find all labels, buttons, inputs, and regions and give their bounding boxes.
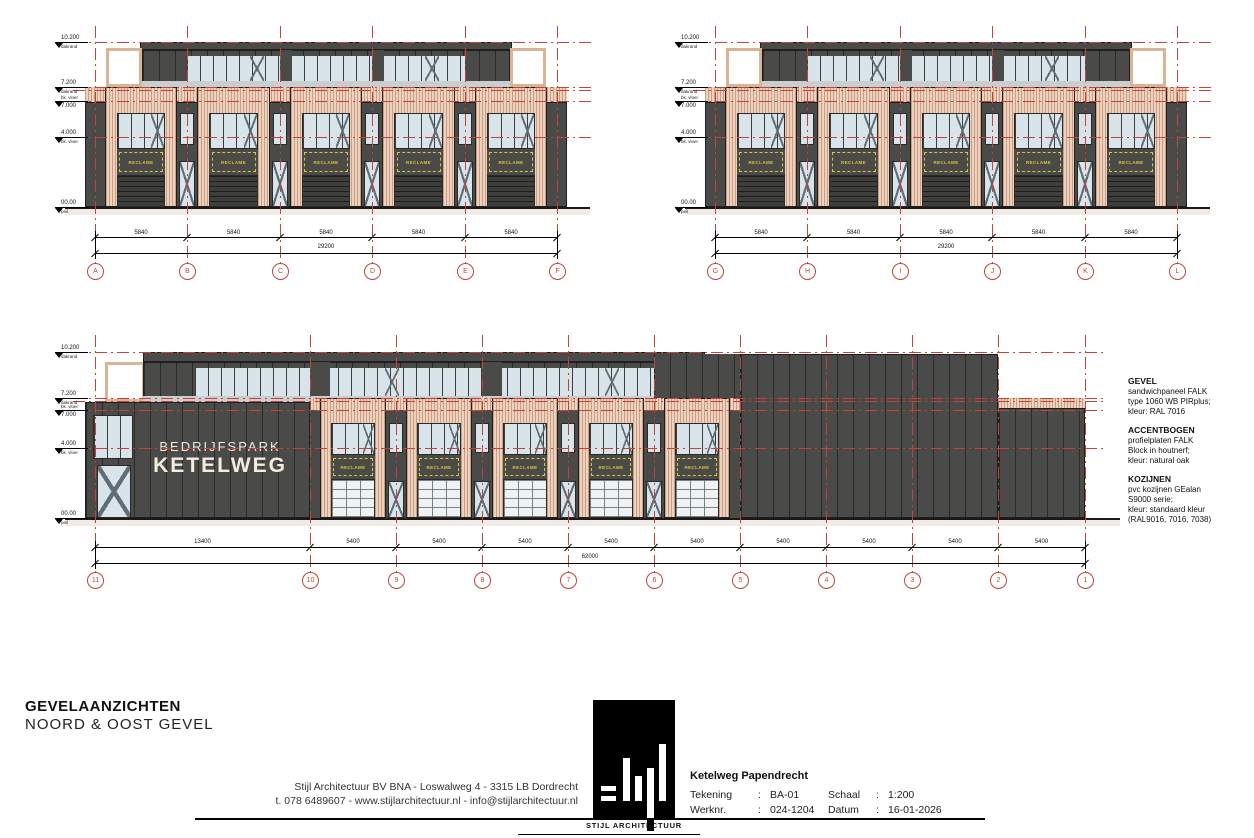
grid-reference-line [1085, 335, 1086, 572]
glass-sectional-door [589, 479, 633, 518]
window-x-pane [621, 424, 632, 454]
glass-sectional-door [417, 479, 461, 518]
dim-total-line [715, 253, 1177, 254]
grid-reference-line [95, 335, 96, 572]
reclame-box: RECLAME [212, 152, 256, 172]
level-sub: peil [681, 209, 688, 214]
spec-gap [1128, 417, 1252, 425]
window-x-pane [449, 424, 460, 454]
roof-terrace-frame [726, 48, 762, 87]
roof-terrace-frame [510, 48, 546, 87]
grid-reference-line [95, 26, 96, 266]
logo-underline [518, 834, 700, 835]
window-x-pane [429, 114, 442, 148]
grid-reference-line [654, 335, 655, 572]
reclame-box: RECLAME [739, 152, 783, 172]
left-window [93, 415, 133, 459]
ground-band [685, 207, 1210, 215]
level-sub: peil [61, 520, 68, 525]
grid-bubble: 3 [904, 572, 921, 589]
window-x-pane [1045, 56, 1059, 81]
level-reference-line [693, 137, 1213, 138]
dim-value: 5400 [930, 539, 980, 546]
level-sub: bk. vloer [681, 95, 698, 100]
grid-reference-line [396, 335, 397, 572]
schaal-label: Schaal [828, 789, 860, 801]
dim-value: 5400 [672, 539, 722, 546]
hall-upper-facade [654, 354, 740, 398]
level-sub: dakrand [61, 89, 77, 94]
dim-value: 5400 [500, 539, 550, 546]
dim-total-value: 29200 [916, 244, 976, 251]
grid-bubble: 10 [302, 572, 319, 589]
grid-reference-line [912, 335, 913, 572]
elevation-grid-a-f: RECLAMERECLAMERECLAMERECLAMERECLAME10.20… [45, 18, 615, 283]
spec-line: type 1060 WB PIRplus; [1128, 397, 1252, 407]
window-x-pane [336, 114, 349, 148]
dim-extension-line [95, 231, 96, 259]
hall-facade [740, 354, 998, 518]
window-x-pane [864, 114, 877, 148]
dim-total-line [95, 253, 557, 254]
dim-value: 5840 [486, 230, 536, 237]
end-facade [998, 408, 1085, 518]
dim-value: 5840 [921, 230, 971, 237]
address-line-2: t. 078 6489607 - www.stijlarchitectuur.n… [200, 794, 578, 808]
level-reference-line [693, 42, 1213, 43]
logo-wordmark: STIJL ARCHITECTUUR [578, 821, 690, 830]
dim-value: 5400 [1017, 539, 1067, 546]
level-value: 00.00 [681, 200, 696, 206]
level-value: 4.000 [61, 130, 76, 136]
dim-value: 5400 [414, 539, 464, 546]
grid-bubble: 1 [1077, 572, 1094, 589]
garage-door [1107, 175, 1155, 207]
window-x-pane [535, 424, 546, 454]
level-value: 7.000 [61, 412, 76, 418]
tekening-label: Tekening [690, 789, 732, 801]
dim-value: 5840 [736, 230, 786, 237]
level-sub: bk. vloer [61, 139, 78, 144]
address-block: Stijl Architectuur BV BNA - Loswalweg 4 … [200, 780, 578, 808]
elevation-grid-g-l: RECLAMERECLAMERECLAMERECLAMERECLAME10.20… [665, 18, 1235, 283]
dim-chain-line [95, 547, 1085, 548]
schaal-colon: : [876, 789, 879, 801]
reclame-box: RECLAME [489, 152, 533, 172]
datum-colon: : [876, 804, 879, 816]
level-reference-line [693, 87, 1213, 88]
grid-reference-line [465, 26, 466, 266]
grid-reference-line [372, 26, 373, 266]
spec-line: S9000 serie; [1128, 495, 1252, 505]
reclame-box: RECLAME [677, 458, 717, 476]
roof-terrace-frame [1130, 48, 1166, 87]
grid-reference-line [568, 335, 569, 572]
dim-value: 5400 [844, 539, 894, 546]
level-reference-line [73, 101, 593, 102]
level-value: 7.000 [681, 103, 696, 109]
grid-reference-line [1177, 26, 1178, 266]
garage-door [394, 175, 443, 207]
level-reference-line [73, 87, 593, 88]
grid-bubble: 2 [990, 572, 1007, 589]
dim-value: 5840 [209, 230, 259, 237]
level-sub: dakrand [61, 44, 77, 49]
level-value: 4.000 [681, 130, 696, 136]
level-value: 4.000 [61, 441, 76, 447]
dim-chain-line [95, 237, 557, 238]
level-sub: dakrand [681, 44, 697, 49]
grid-bubble: 9 [388, 572, 405, 589]
window-x-pane [771, 114, 784, 148]
level-reference-line [73, 90, 593, 91]
end-wood-band [998, 398, 1085, 408]
tekening-colon: : [758, 789, 761, 801]
material-spec-block: GEVELsandwichpaneel FALKtype 1060 WB PIR… [1128, 376, 1252, 533]
grid-reference-line [310, 335, 311, 572]
window-x-pane [707, 424, 718, 454]
grid-bubble: D [364, 263, 381, 280]
elevation-grid-11-1: BEDRIJFSPARKKETELWEGRECLAMERECLAMERECLAM… [45, 335, 1135, 593]
dim-extension-line [1177, 231, 1178, 259]
dim-value: 5400 [758, 539, 808, 546]
reclame-box: RECLAME [333, 458, 373, 476]
grid-bubble: C [272, 263, 289, 280]
grid-bubble: J [984, 263, 1001, 280]
spec-line: kleur: RAL 7016 [1128, 407, 1252, 417]
level-value: 10.200 [681, 35, 699, 41]
dim-value: 5400 [586, 539, 636, 546]
garage-door [1014, 175, 1063, 207]
dim-extension-line [557, 231, 558, 259]
level-value: 10.200 [61, 35, 79, 41]
spec-title: ACCENTBOGEN [1128, 425, 1252, 436]
werknr-value: 024-1204 [770, 804, 814, 816]
spec-gap [1128, 525, 1252, 533]
grid-reference-line [1085, 26, 1086, 266]
ground-band [65, 518, 1120, 526]
window-x-pane [605, 368, 619, 396]
level-value: 7.000 [61, 103, 76, 109]
grid-bubble: A [87, 263, 104, 280]
dim-value: 5840 [301, 230, 351, 237]
reclame-box: RECLAME [1109, 152, 1153, 172]
garage-door [922, 175, 970, 207]
window-x-pane [151, 114, 164, 148]
grid-bubble: 5 [732, 572, 749, 589]
drawing-title: GEVELAANZICHTEN [25, 698, 181, 715]
level-value: 10.200 [61, 345, 79, 351]
spec-title: KOZIJNEN [1128, 474, 1252, 485]
level-reference-line [73, 352, 1103, 353]
drawing-subtitle: NOORD & OOST GEVEL [25, 716, 214, 733]
glass-sectional-door [675, 479, 719, 518]
grid-reference-line [715, 26, 716, 266]
grid-bubble: 4 [818, 572, 835, 589]
ground-band [65, 207, 590, 215]
roof-terrace-frame [105, 362, 145, 402]
level-sub: bk. vloer [61, 95, 78, 100]
grid-reference-line [900, 26, 901, 266]
datum-label: Datum [828, 804, 859, 816]
dim-extension-line [1085, 541, 1086, 569]
datum-value: 16-01-2026 [888, 804, 942, 816]
logo-bar [601, 786, 616, 791]
dim-value: 5840 [394, 230, 444, 237]
reclame-box: RECLAME [505, 458, 545, 476]
window-x-pane [521, 114, 534, 148]
spec-line: kleur: natural oak [1128, 456, 1252, 466]
window-x-pane [250, 56, 264, 81]
grid-bubble: 6 [646, 572, 663, 589]
level-reference-line [73, 398, 1103, 399]
grid-bubble: B [179, 263, 196, 280]
dim-value: 5840 [1014, 230, 1064, 237]
grid-reference-line [482, 335, 483, 572]
spec-line: sandwichpaneel FALK [1128, 387, 1252, 397]
drawing-sheet: RECLAMERECLAMERECLAMERECLAMERECLAME10.20… [0, 0, 1254, 838]
grid-bubble: L [1169, 263, 1186, 280]
level-reference-line [73, 448, 1103, 449]
werknr-label: Werknr. [690, 804, 726, 816]
dim-total-value: 62000 [560, 554, 620, 561]
building-sign-line1: BEDRIJFSPARK [135, 439, 305, 454]
upper-glass-band [187, 56, 465, 81]
dim-value: 5400 [328, 539, 378, 546]
grid-reference-line [557, 26, 558, 266]
level-sub: bk. vloer [681, 139, 698, 144]
building-sign-line2: KETELWEG [135, 454, 305, 478]
grid-reference-line [740, 335, 741, 572]
reclame-box: RECLAME [119, 152, 163, 172]
level-reference-line [73, 401, 1103, 402]
grid-bubble: E [457, 263, 474, 280]
grid-bubble: G [707, 263, 724, 280]
level-value: 7.200 [61, 391, 76, 397]
grid-bubble: 8 [474, 572, 491, 589]
title-block: Ketelweg Papendrecht Tekening : BA-01 We… [690, 770, 990, 782]
spec-line: profielplaten FALK [1128, 436, 1252, 446]
reclame-box: RECLAME [832, 152, 876, 172]
spec-line: Block in houtnerf; [1128, 446, 1252, 456]
dim-value: 5840 [1106, 230, 1156, 237]
grid-bubble: I [892, 263, 909, 280]
project-name: Ketelweg Papendrecht [690, 770, 990, 782]
dim-value: 13400 [178, 539, 228, 546]
level-sub: dakrand [681, 89, 697, 94]
spec-gap [1128, 466, 1252, 474]
garage-door [209, 175, 258, 207]
roof-terrace-frame [106, 48, 142, 87]
dim-extension-line [715, 231, 716, 259]
grid-reference-line [992, 26, 993, 266]
grid-bubble: K [1077, 263, 1094, 280]
stijl-architectuur-logo [593, 700, 675, 818]
spec-title: GEVEL [1128, 376, 1252, 387]
werknr-colon: : [758, 804, 761, 816]
window-x-pane [363, 424, 374, 454]
upper-glass-band [807, 56, 1085, 81]
window-x-pane [956, 114, 969, 148]
roof-band [143, 352, 705, 362]
grid-reference-line [187, 26, 188, 266]
glass-sectional-door [331, 479, 375, 518]
garage-door [487, 175, 535, 207]
grid-reference-line [807, 26, 808, 266]
reclame-box: RECLAME [924, 152, 968, 172]
logo-bar [623, 758, 630, 801]
grid-bubble: 7 [560, 572, 577, 589]
level-reference-line [693, 90, 1213, 91]
dim-value: 5840 [116, 230, 166, 237]
level-sub: bk. vloer [61, 450, 78, 455]
address-line-1: Stijl Architectuur BV BNA - Loswalweg 4 … [200, 780, 578, 794]
window-x-pane [1141, 114, 1154, 148]
dim-extension-line [95, 541, 96, 569]
roof-band [760, 42, 1132, 50]
entrance-door [97, 465, 131, 518]
dim-total-line [95, 563, 1085, 564]
window-x-pane [244, 114, 257, 148]
level-value: 00.00 [61, 511, 76, 517]
level-sub: bk. vloer [61, 404, 78, 409]
tekening-value: BA-01 [770, 789, 799, 801]
level-sub: peil [61, 209, 68, 214]
grid-reference-line [998, 335, 999, 572]
logo-bar [635, 776, 642, 801]
garage-door [302, 175, 350, 207]
level-reference-line [73, 137, 593, 138]
reclame-box: RECLAME [304, 152, 348, 172]
logo-bar [601, 796, 616, 801]
grid-bubble: H [799, 263, 816, 280]
level-reference-line [73, 42, 593, 43]
spec-line: (RAL9016, 7016, 7038) [1128, 515, 1252, 525]
reclame-box: RECLAME [591, 458, 631, 476]
level-reference-line [73, 410, 1103, 411]
dim-total-value: 29200 [296, 244, 356, 251]
footer-rule [195, 818, 985, 820]
level-value: 7.200 [681, 80, 696, 86]
reclame-box: RECLAME [397, 152, 441, 172]
glass-sectional-door [503, 479, 547, 518]
reclame-box: RECLAME [1017, 152, 1061, 172]
reclame-box: RECLAME [419, 458, 459, 476]
window-x-pane [425, 56, 439, 81]
grid-bubble: F [549, 263, 566, 280]
schaal-value: 1:200 [888, 789, 914, 801]
grid-bubble: 11 [87, 572, 104, 589]
spec-line: kleur: standaard kleur [1128, 505, 1252, 515]
garage-door [829, 175, 878, 207]
level-reference-line [693, 101, 1213, 102]
window-x-pane [1049, 114, 1062, 148]
grid-reference-line [826, 335, 827, 572]
logo-bar [647, 768, 654, 818]
roof-band [140, 42, 512, 50]
garage-door [117, 175, 165, 207]
level-sub: dakrand [61, 354, 77, 359]
grid-reference-line [280, 26, 281, 266]
spec-line: pvc kozijnen GEalan [1128, 485, 1252, 495]
dim-chain-line [715, 237, 1177, 238]
level-value: 7.200 [61, 80, 76, 86]
window-x-pane [870, 56, 884, 81]
logo-bar [659, 744, 666, 801]
level-value: 00.00 [61, 200, 76, 206]
dim-value: 5840 [829, 230, 879, 237]
garage-door [737, 175, 785, 207]
